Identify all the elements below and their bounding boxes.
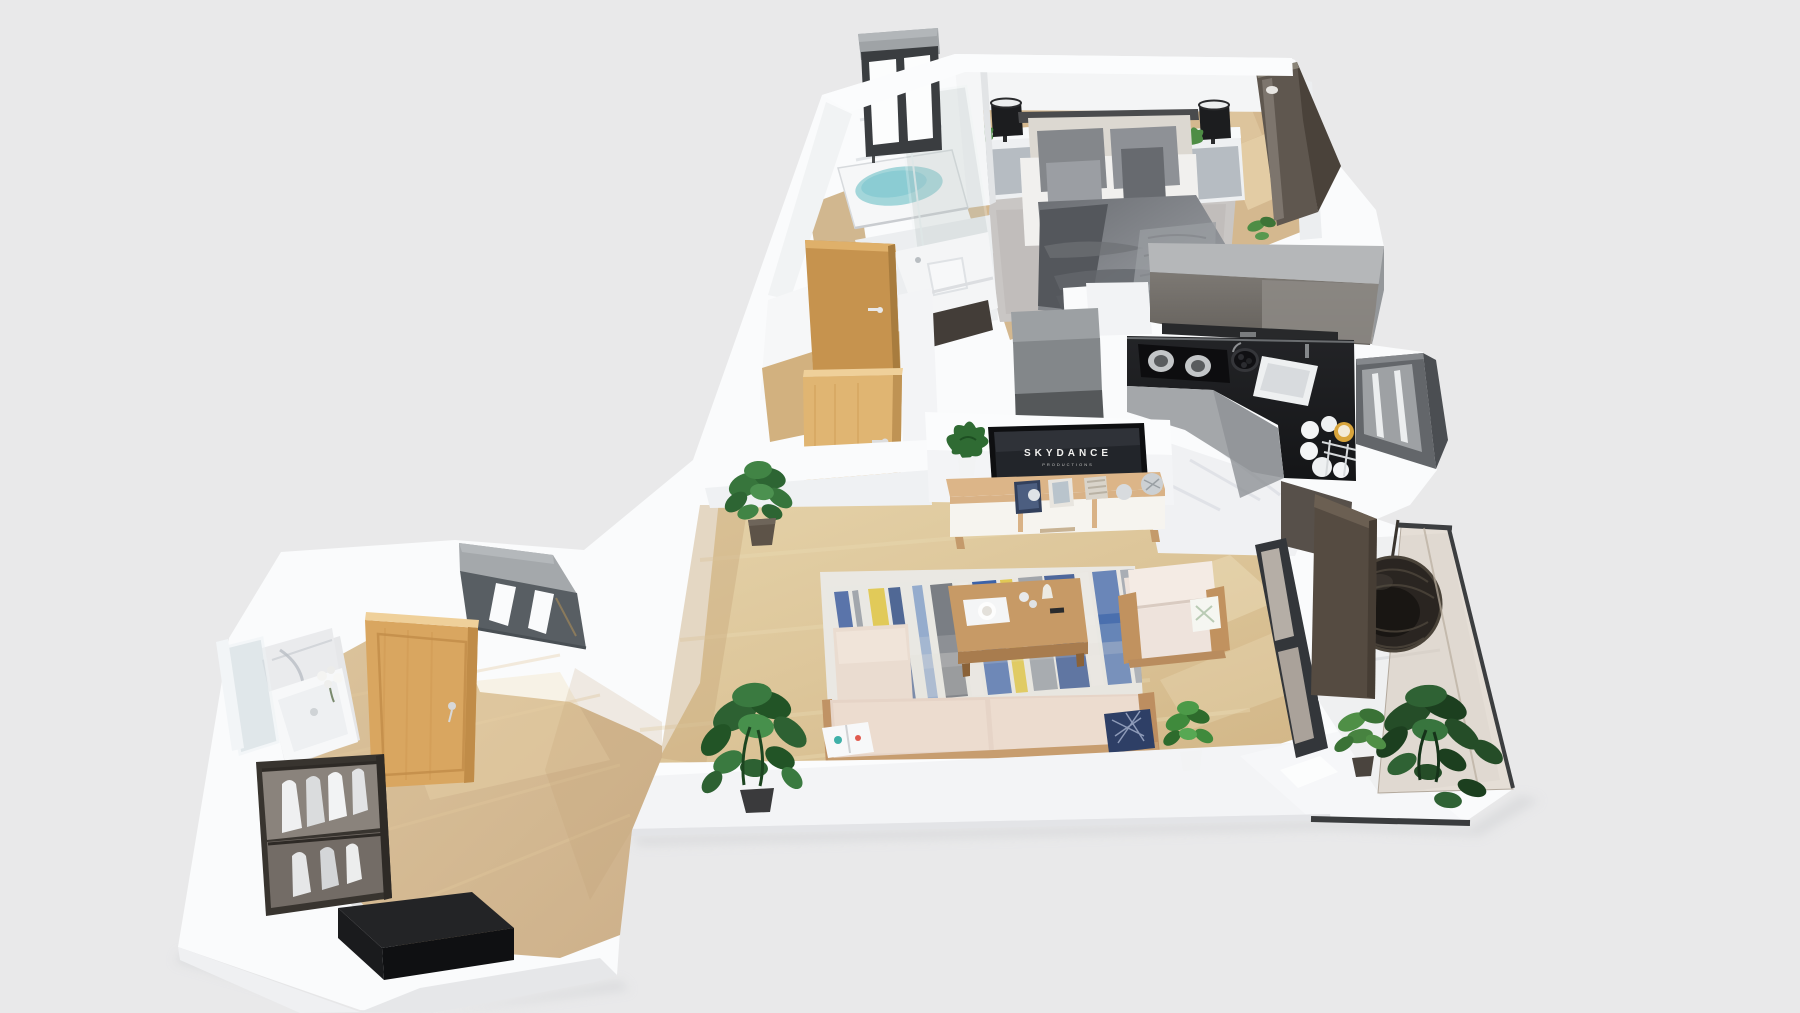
svg-text:PRODUCTIONS: PRODUCTIONS <box>1042 462 1094 467</box>
svg-text:SKYDANCE: SKYDANCE <box>1024 448 1112 459</box>
